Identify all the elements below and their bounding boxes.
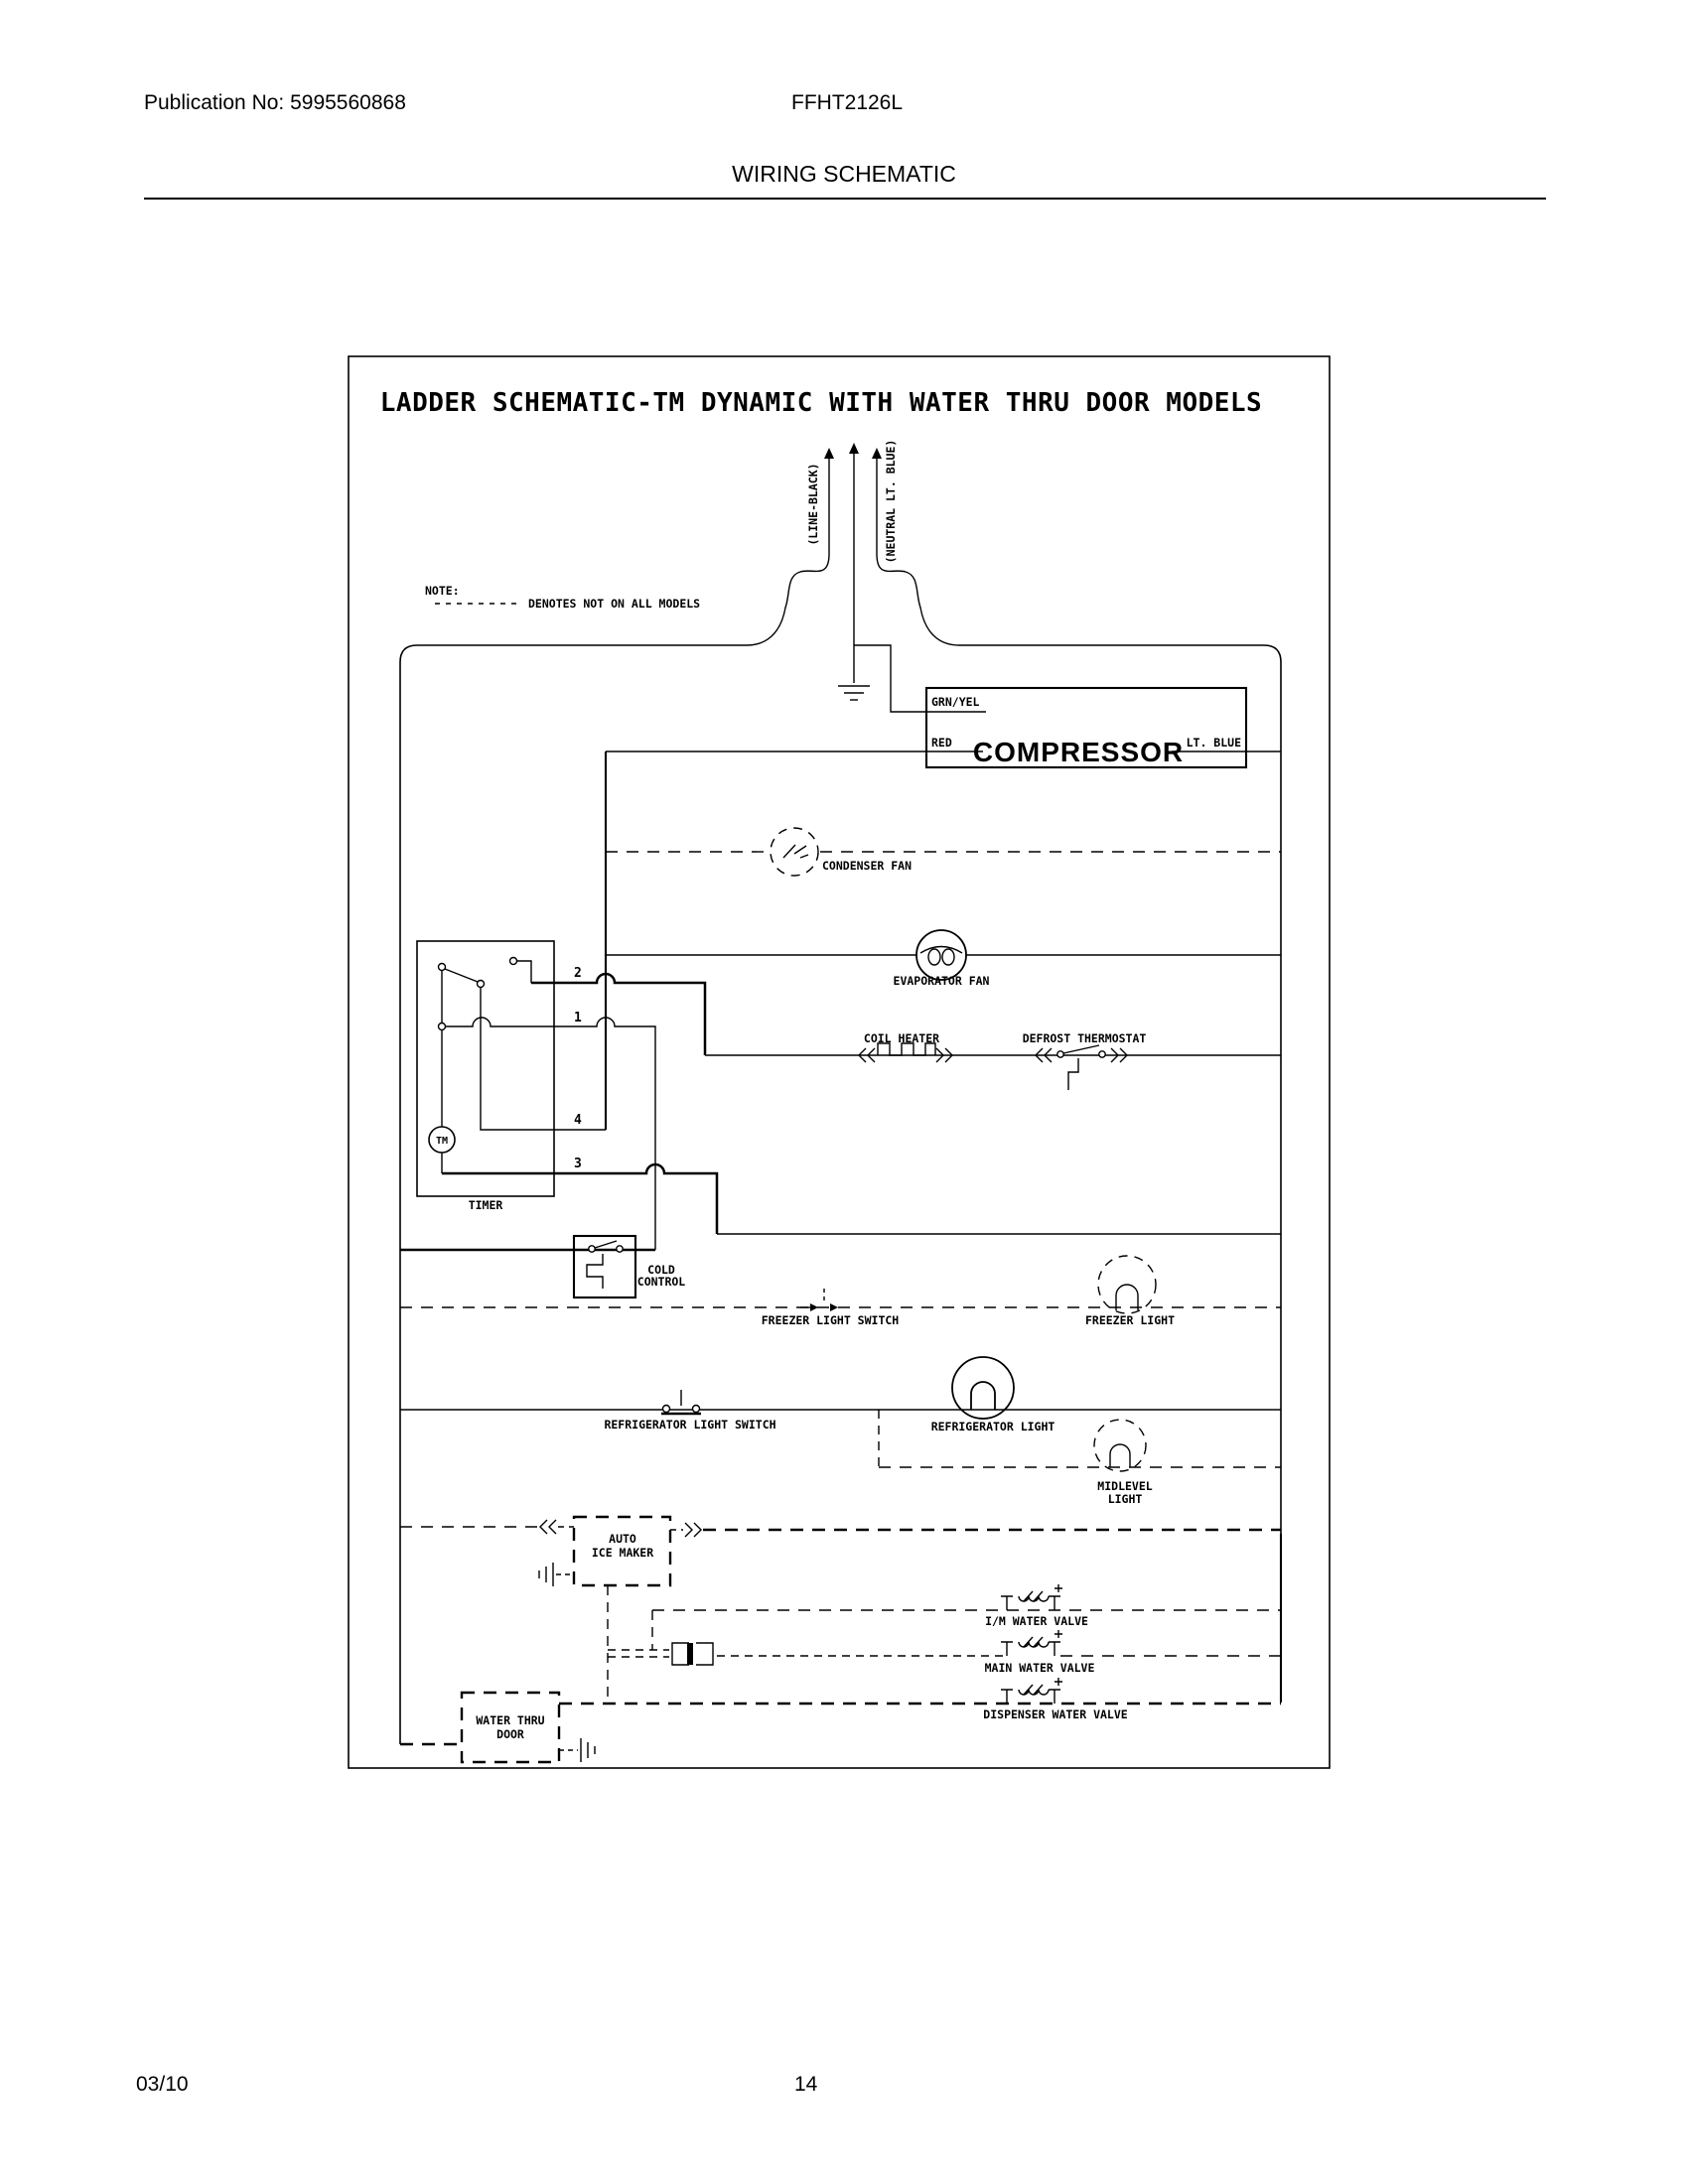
defrost-thermostat-icon <box>1036 1045 1127 1090</box>
rails <box>400 645 1281 1744</box>
dispenser-water-valve-icon <box>1001 1678 1062 1704</box>
footer-date: 03/10 <box>136 2073 189 2097</box>
compressor-label: COMPRESSOR <box>973 737 1184 767</box>
im-water-valve-icon <box>1001 1584 1062 1610</box>
refrigerator-light-switch-label: REFRIGERATOR LIGHT SWITCH <box>604 1418 775 1432</box>
freezer-light-label: FREEZER LIGHT <box>1085 1313 1175 1327</box>
ice-maker-label-2: ICE MAKER <box>592 1546 653 1560</box>
red-label: RED <box>931 736 952 750</box>
terminal-2: 2 <box>574 966 582 981</box>
condenser-fan-label: CONDENSER FAN <box>822 859 912 873</box>
wire-1 <box>445 1018 655 1250</box>
water-thru-door-label-2: DOOR <box>496 1727 524 1741</box>
timer: TIMER TM 2 1 4 3 <box>417 941 1281 1250</box>
wire-2 <box>531 974 705 1055</box>
document-page: Publication No: 5995560868 FFHT2126L WIR… <box>0 0 1688 2184</box>
header-rule <box>144 198 1546 200</box>
refrigerator-light-row: REFRIGERATOR LIGHT SWITCH REFRIGERATOR L… <box>400 1357 1281 1433</box>
wiring-schematic: LADDER SCHEMATIC-TM DYNAMIC WITH WATER T… <box>348 355 1331 1769</box>
midlevel-light-icon <box>1094 1420 1146 1471</box>
coil-heater-label: COIL HEATER <box>864 1031 939 1045</box>
evaporator-fan-icon <box>916 930 966 980</box>
note-legend: NOTE: DENOTES NOT ON ALL MODELS <box>425 584 700 611</box>
freezer-light-icon <box>1098 1256 1156 1313</box>
cold-control: COLD CONTROL <box>400 1236 685 1297</box>
water-valve-circuit: I/M WATER VALVE MAIN WATER VALVE DISPENS… <box>559 1584 1281 1721</box>
water-thru-door-label-1: WATER THRU <box>476 1713 544 1727</box>
cold-control-label-2: CONTROL <box>637 1275 686 1289</box>
terminal-3: 3 <box>574 1157 582 1171</box>
compressor: GRN/YEL RED LT. BLUE COMPRESSOR <box>606 645 1281 767</box>
midlevel-light-label-1: MIDLEVEL <box>1097 1479 1152 1493</box>
freezer-light-switch-label: FREEZER LIGHT SWITCH <box>762 1313 900 1327</box>
footer-page-number: 14 <box>794 2073 817 2097</box>
water-thru-door-ground-icon <box>581 1738 595 1762</box>
note-text: DENOTES NOT ON ALL MODELS <box>528 597 700 611</box>
im-water-valve-label: I/M WATER VALVE <box>985 1614 1088 1628</box>
grn-yel-label: GRN/YEL <box>931 695 980 709</box>
condenser-fan: CONDENSER FAN <box>606 828 1281 876</box>
dispenser-water-valve-label: DISPENSER WATER VALVE <box>983 1707 1127 1721</box>
schematic-frame <box>349 356 1330 1768</box>
coil-heater-icon <box>859 1043 952 1062</box>
main-water-valve-label: MAIN WATER VALVE <box>985 1661 1095 1675</box>
harness-plug-icon <box>672 1643 713 1665</box>
timer-motor-label: TM <box>436 1136 448 1147</box>
ground-icon <box>838 686 870 700</box>
note-label: NOTE: <box>425 584 460 598</box>
model-number: FFHT2126L <box>791 91 903 115</box>
freezer-light-row: FREEZER LIGHT SWITCH FREEZER LIGHT <box>400 1256 1281 1327</box>
neutral-blue-label: (NEUTRAL LT. BLUE) <box>884 440 898 564</box>
page-title: WIRING SCHEMATIC <box>732 161 956 188</box>
publication-number: Publication No: 5995560868 <box>144 91 406 115</box>
evaporator-fan: EVAPORATOR FAN <box>606 930 1281 988</box>
ice-maker-label-1: AUTO <box>609 1532 636 1546</box>
supply-leads: (LINE-BLACK) (NEUTRAL LT. BLUE) <box>747 440 959 700</box>
evaporator-fan-label: EVAPORATOR FAN <box>894 974 990 988</box>
terminal-1: 1 <box>574 1011 582 1025</box>
refrigerator-light-label: REFRIGERATOR LIGHT <box>931 1420 1055 1433</box>
condenser-fan-icon <box>771 828 818 876</box>
defrost-thermostat-label: DEFROST THERMOSTAT <box>1023 1031 1147 1045</box>
main-water-valve-icon <box>1001 1630 1062 1656</box>
defrost-circuit: COIL HEATER DEFROST THERMOSTAT <box>705 1031 1281 1090</box>
midlevel-light-label-2: LIGHT <box>1108 1492 1143 1506</box>
terminal-4: 4 <box>574 1113 582 1128</box>
line-black-label: (LINE-BLACK) <box>806 463 820 545</box>
schematic-title: LADDER SCHEMATIC-TM DYNAMIC WITH WATER T… <box>380 388 1262 418</box>
timer-label: TIMER <box>469 1198 503 1212</box>
lt-blue-label: LT. BLUE <box>1187 736 1241 750</box>
wire-4 <box>481 987 606 1130</box>
ice-maker-ground-icon <box>539 1563 553 1586</box>
